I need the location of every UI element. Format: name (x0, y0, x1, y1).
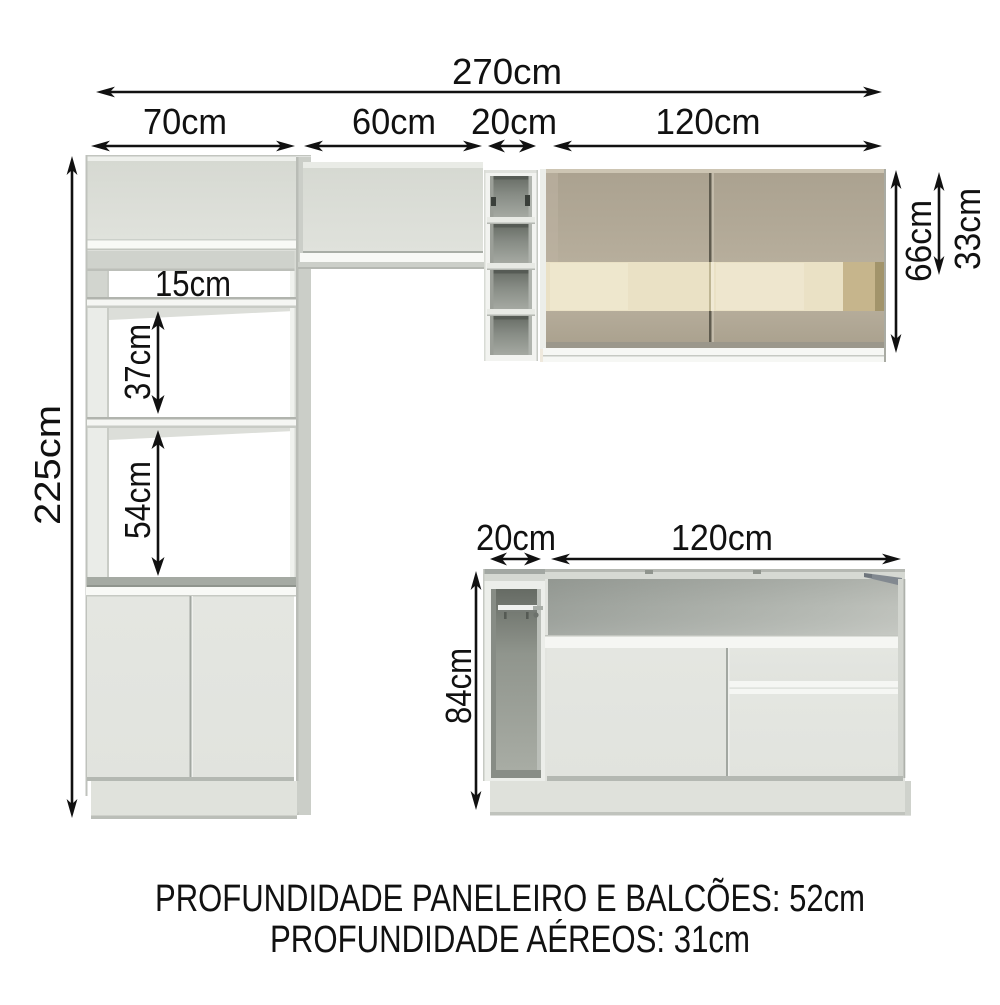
svg-text:225cm: 225cm (27, 405, 68, 525)
svg-text:33cm: 33cm (947, 188, 988, 270)
svg-text:15cm: 15cm (155, 263, 231, 304)
svg-text:270cm: 270cm (452, 51, 562, 92)
svg-text:37cm: 37cm (117, 324, 158, 400)
svg-text:84cm: 84cm (438, 648, 479, 724)
svg-text:70cm: 70cm (143, 101, 227, 142)
svg-text:54cm: 54cm (117, 461, 158, 539)
svg-text:60cm: 60cm (352, 101, 436, 142)
svg-text:20cm: 20cm (476, 517, 556, 558)
svg-text:PROFUNDIDADE PANELEIRO E BALCÕ: PROFUNDIDADE PANELEIRO E BALCÕES: 52cm (155, 876, 865, 920)
svg-text:66cm: 66cm (898, 200, 939, 282)
svg-text:120cm: 120cm (671, 517, 773, 558)
svg-text:PROFUNDIDADE AÉREOS: 31cm: PROFUNDIDADE AÉREOS: 31cm (270, 918, 750, 961)
svg-text:20cm: 20cm (471, 101, 557, 142)
svg-text:120cm: 120cm (656, 101, 761, 142)
